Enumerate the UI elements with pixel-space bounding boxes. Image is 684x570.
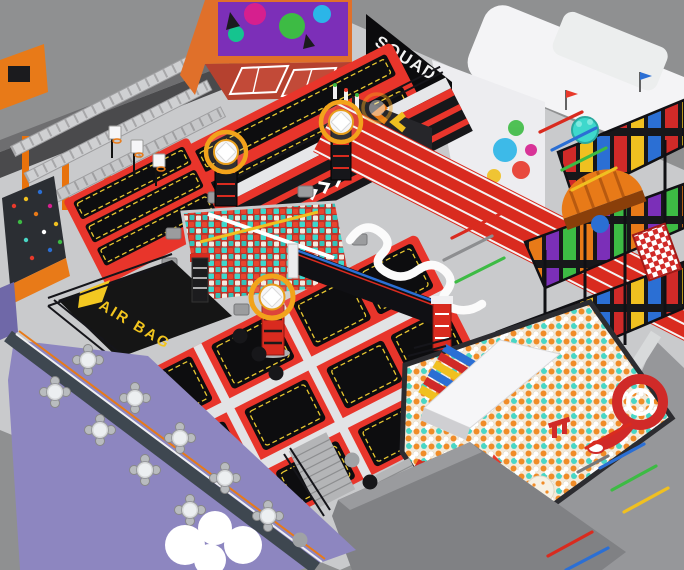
- blue-ball: [591, 215, 609, 233]
- mural: [218, 2, 348, 56]
- trampoline-park-render: SQUAD UP: [0, 0, 684, 570]
- ladder-tower: [190, 254, 210, 302]
